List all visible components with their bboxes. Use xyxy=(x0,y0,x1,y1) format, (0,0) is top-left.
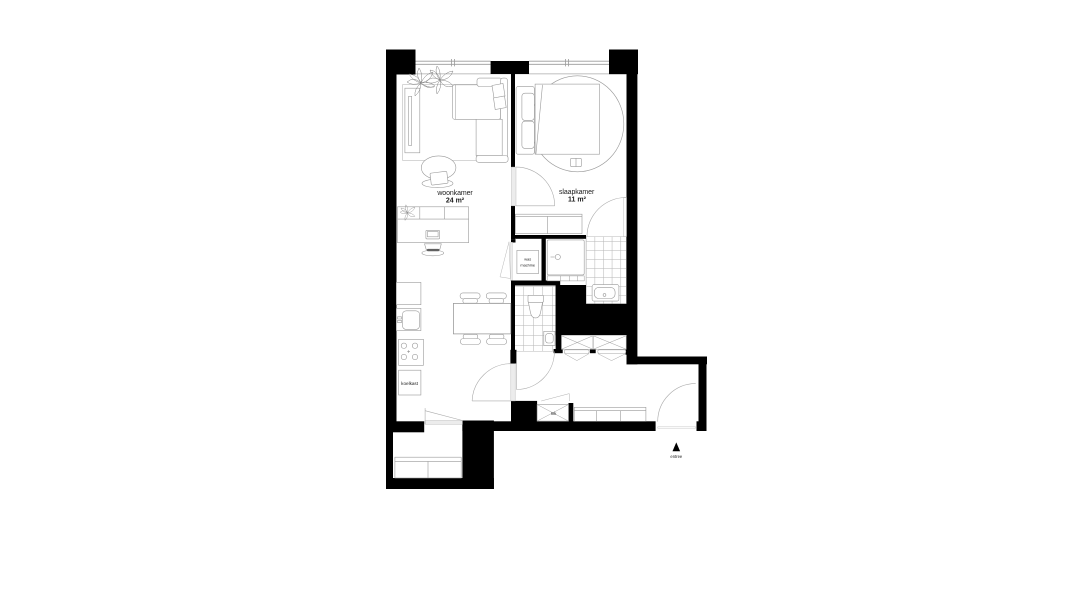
svg-text:was: was xyxy=(524,257,531,262)
svg-text:11 m²: 11 m² xyxy=(568,196,587,203)
svg-text:mk: mk xyxy=(551,411,557,416)
svg-text:24 m²: 24 m² xyxy=(446,197,465,204)
svg-text:entree: entree xyxy=(670,454,683,459)
svg-text:slaapkamer: slaapkamer xyxy=(559,189,595,196)
svg-text:machine: machine xyxy=(520,262,535,267)
svg-text:woonkamer: woonkamer xyxy=(436,190,473,197)
svg-text:koelkast: koelkast xyxy=(401,381,419,386)
